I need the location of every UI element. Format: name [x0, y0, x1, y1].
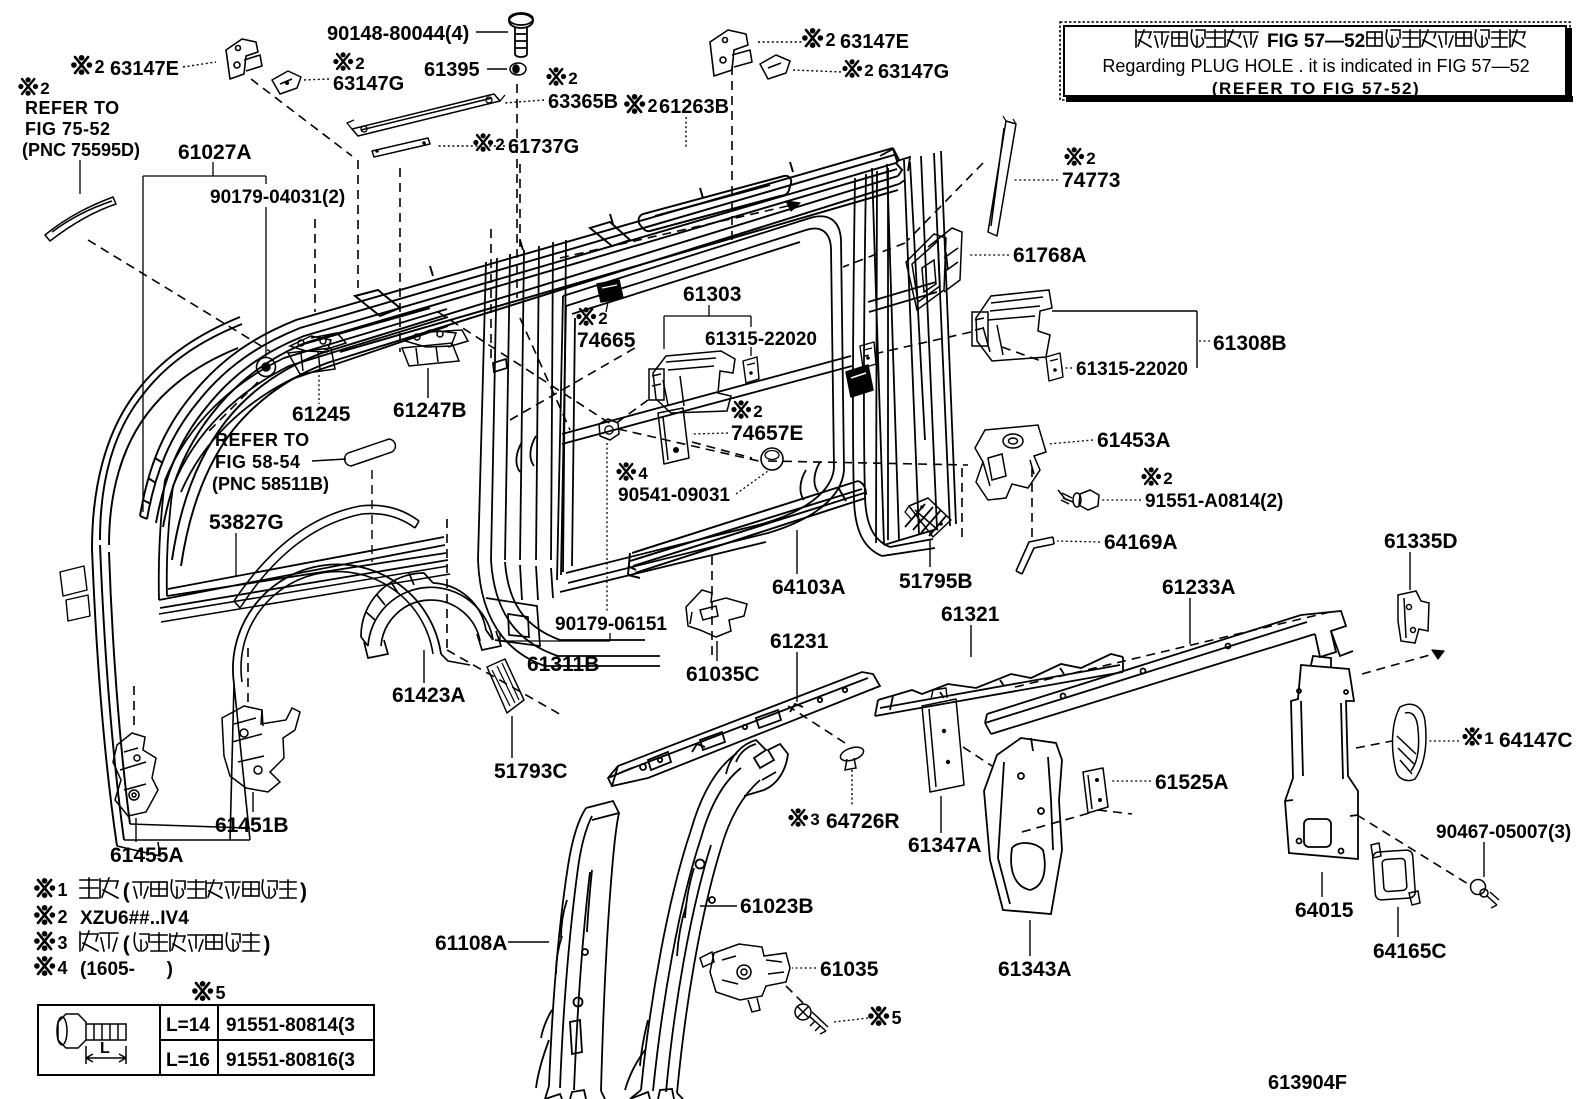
svg-text:61525A: 61525A: [1155, 771, 1229, 794]
svg-text:3: 3: [810, 810, 819, 829]
svg-text:(1605- ): (1605- ): [80, 959, 173, 980]
svg-text:61035C: 61035C: [686, 663, 760, 686]
svg-text:63147E: 63147E: [110, 58, 179, 80]
svg-text:64169A: 64169A: [1104, 531, 1178, 554]
svg-text:61023B: 61023B: [740, 895, 814, 918]
svg-text:5: 5: [892, 1008, 902, 1028]
svg-text:61303: 61303: [683, 283, 741, 306]
svg-text:64165C: 64165C: [1373, 940, 1447, 963]
svg-text:2: 2: [1086, 149, 1095, 168]
svg-text:L=14: L=14: [166, 1015, 210, 1036]
svg-text:61335D: 61335D: [1384, 530, 1458, 553]
svg-text:1: 1: [1484, 729, 1493, 748]
svg-text:91551-A0814(2): 91551-A0814(2): [1145, 491, 1283, 512]
svg-text:61453A: 61453A: [1097, 429, 1171, 452]
svg-text:613904F: 613904F: [1268, 1072, 1347, 1094]
svg-text:51795B: 51795B: [899, 570, 973, 593]
svg-text:): ): [300, 880, 307, 903]
svg-text:4: 4: [638, 464, 648, 483]
svg-text:63365B: 63365B: [548, 91, 618, 113]
svg-text:): ): [263, 933, 270, 956]
svg-text:90467-05007(3): 90467-05007(3): [1436, 822, 1571, 843]
svg-text:61231: 61231: [770, 630, 829, 653]
svg-text:2: 2: [648, 96, 658, 116]
svg-text:2: 2: [864, 61, 873, 80]
svg-text:(REFER TO FIG 57-52): (REFER TO FIG 57-52): [1212, 79, 1420, 98]
svg-text:61321: 61321: [941, 603, 1000, 626]
svg-text:5: 5: [216, 983, 226, 1003]
svg-text:REFER TO: REFER TO: [25, 98, 120, 118]
svg-text:64147C: 64147C: [1499, 729, 1573, 752]
svg-text:61768A: 61768A: [1013, 244, 1087, 267]
svg-text:FIG 58-54: FIG 58-54: [215, 452, 301, 472]
svg-text:61455A: 61455A: [110, 844, 184, 867]
svg-text:L: L: [100, 1040, 110, 1057]
svg-text:4: 4: [58, 958, 68, 978]
svg-text:61451B: 61451B: [215, 814, 289, 837]
svg-text:74773: 74773: [1062, 169, 1120, 192]
svg-text:L=16: L=16: [166, 1050, 210, 1071]
svg-text:64726R: 64726R: [826, 810, 900, 833]
svg-text:63147E: 63147E: [840, 31, 909, 53]
svg-text:61247B: 61247B: [393, 399, 467, 422]
svg-text:2: 2: [826, 30, 836, 50]
svg-text:REFER TO: REFER TO: [215, 430, 310, 450]
svg-text:61245: 61245: [292, 403, 351, 426]
svg-text:61108A: 61108A: [435, 932, 507, 955]
svg-text:FIG 75-52: FIG 75-52: [25, 119, 111, 139]
svg-text:61315-22020: 61315-22020: [1076, 359, 1188, 380]
svg-text:64103A: 64103A: [772, 576, 846, 599]
svg-text:61347A: 61347A: [908, 834, 982, 857]
svg-text:74665: 74665: [577, 329, 636, 352]
svg-text:2: 2: [495, 135, 504, 154]
svg-text:51793C: 51793C: [494, 760, 568, 783]
svg-text:FIG 57—52: FIG 57—52: [1267, 31, 1365, 52]
svg-text:2: 2: [568, 69, 577, 88]
svg-text:61737G: 61737G: [508, 136, 579, 158]
svg-text:(PNC 75595D): (PNC 75595D): [22, 140, 140, 160]
svg-text:XZU6##..IV4: XZU6##..IV4: [80, 908, 189, 929]
svg-text:90148-80044(4): 90148-80044(4): [327, 23, 469, 45]
svg-text:61027A: 61027A: [178, 141, 252, 164]
svg-text:61263B: 61263B: [659, 96, 729, 118]
svg-text:91551-80814(3: 91551-80814(3: [226, 1015, 355, 1036]
svg-text:90179-04031(2): 90179-04031(2): [210, 187, 345, 208]
svg-text:90179-06151: 90179-06151: [555, 614, 667, 635]
svg-text:(: (: [123, 933, 130, 956]
svg-text:2: 2: [95, 57, 105, 77]
svg-text:1: 1: [58, 880, 68, 900]
svg-text:64015: 64015: [1295, 899, 1354, 922]
svg-text:91551-80816(3: 91551-80816(3: [226, 1050, 355, 1071]
svg-text:61343A: 61343A: [998, 958, 1072, 981]
svg-text:53827G: 53827G: [209, 511, 284, 534]
svg-text:2: 2: [40, 79, 49, 98]
svg-text:Regarding PLUG HOLE . it is: Regarding PLUG HOLE . it is indicated in…: [1102, 56, 1529, 76]
svg-text:90541-09031: 90541-09031: [618, 485, 730, 506]
svg-text:(PNC 58511B): (PNC 58511B): [212, 474, 329, 494]
svg-text:61233A: 61233A: [1162, 576, 1236, 599]
svg-text:2: 2: [753, 402, 762, 421]
svg-text:61315-22020: 61315-22020: [705, 329, 817, 350]
svg-text:2: 2: [58, 907, 68, 927]
svg-text:(: (: [123, 880, 130, 903]
svg-text:2: 2: [1163, 469, 1172, 488]
svg-text:61311B: 61311B: [527, 653, 599, 676]
svg-text:3: 3: [58, 933, 68, 953]
svg-text:61395: 61395: [424, 59, 480, 81]
svg-text:74657E: 74657E: [731, 422, 803, 445]
svg-text:63147G: 63147G: [878, 61, 949, 83]
svg-text:2: 2: [355, 54, 364, 73]
svg-text:63147G: 63147G: [333, 73, 404, 95]
svg-text:61308B: 61308B: [1213, 332, 1287, 355]
svg-text:61423A: 61423A: [392, 684, 466, 707]
svg-text:61035: 61035: [820, 958, 879, 981]
